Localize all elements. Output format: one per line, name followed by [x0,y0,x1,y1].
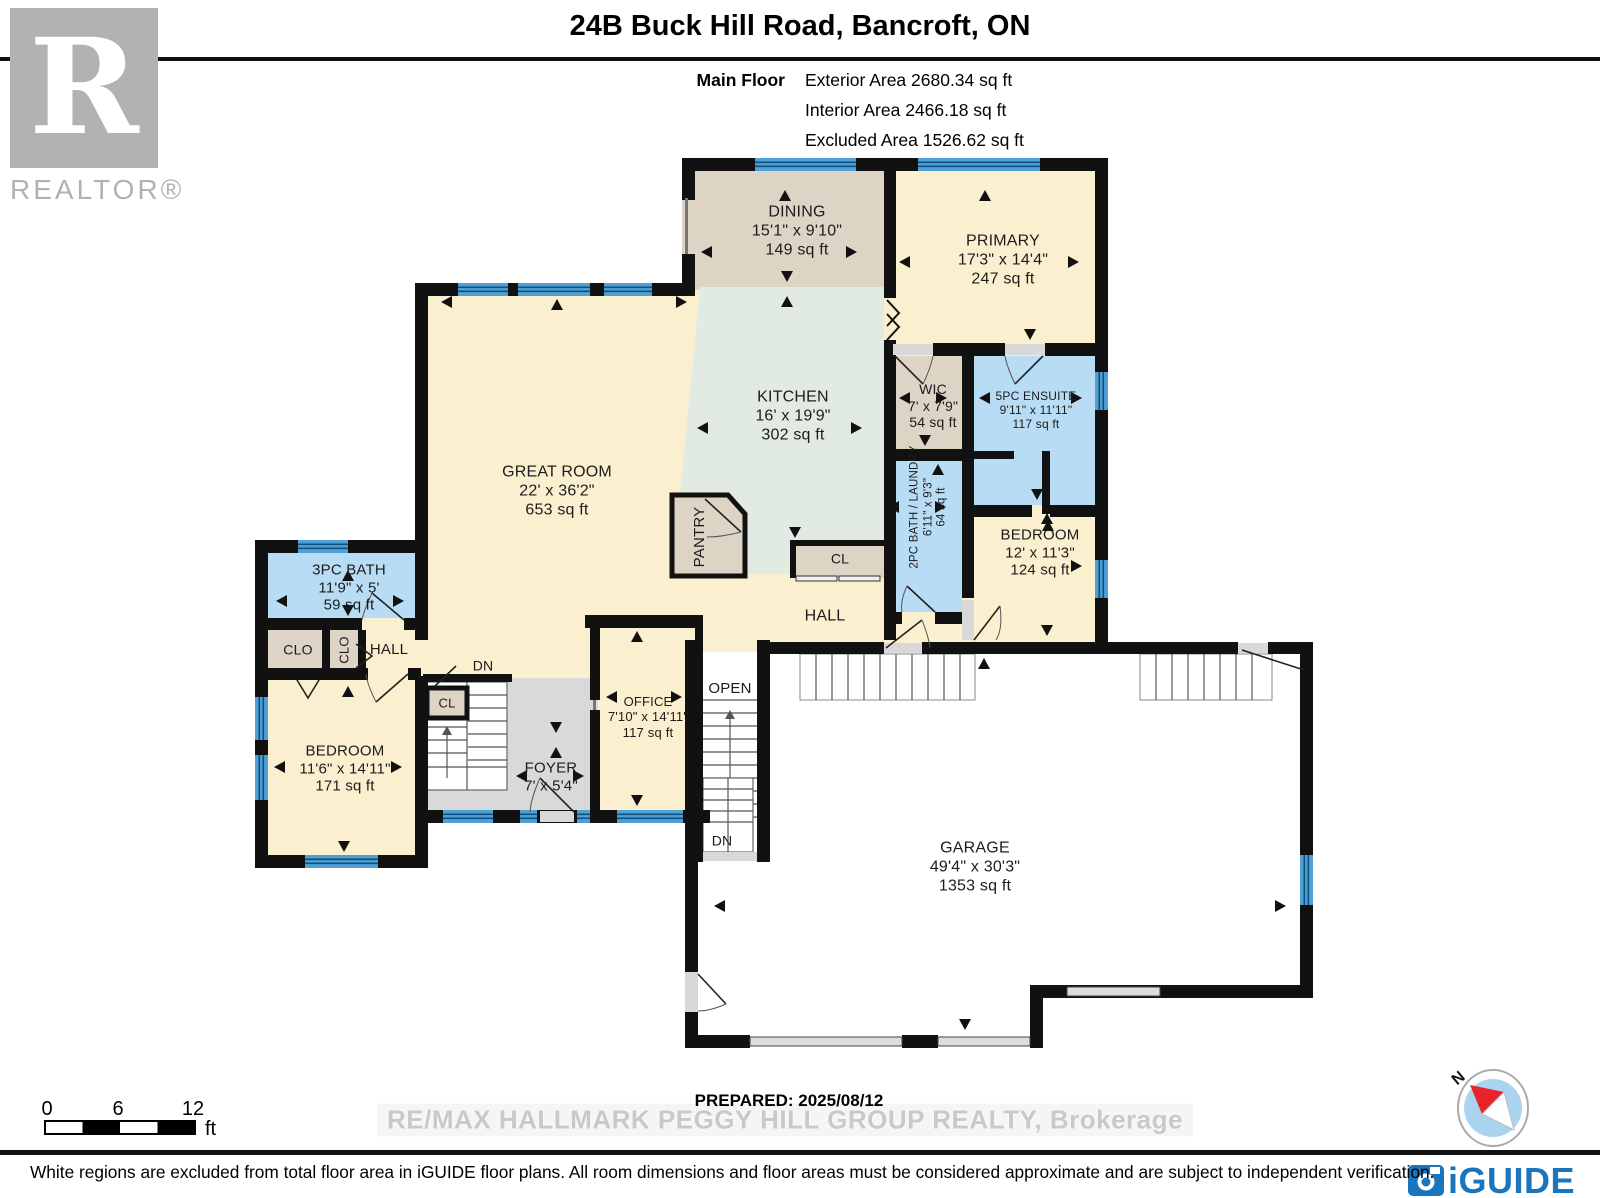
room-dims: 7' x 5'4" [524,777,578,795]
scale-tick-0: 0 [41,1098,52,1121]
interior-area: Interior Area 2466.18 sq ft [805,100,1024,121]
room-name: BEDROOM [299,742,390,760]
room-area: 247 sq ft [958,270,1048,289]
area-stats: Exterior Area 2680.34 sq ft Interior Are… [805,70,1024,160]
room-label-garage: GARAGE 49'4" x 30'3" 1353 sq ft [930,840,1020,897]
room-area: 59 sq ft [312,597,386,615]
room-area: 149 sq ft [752,241,842,260]
room-name: WIC [908,381,958,398]
room-area: 171 sq ft [299,778,390,796]
page-title: 24B Buck Hill Road, Bancroft, ON [0,10,1600,43]
room-dims: 15'1" x 9'10" [752,223,842,242]
exterior-area: Exterior Area 2680.34 sq ft [805,70,1024,91]
room-name: 3PC BATH [312,561,386,579]
room-label-wic: WIC 7' x 7'9" 54 sq ft [908,381,958,431]
room-label-great-room: GREAT ROOM 22' x 36'2" 653 sq ft [502,464,612,521]
room-area: 64 sq ft [936,445,950,568]
scale-bar [45,1121,195,1134]
hall-upper-label: HALL [805,608,846,627]
room-dims: 22' x 36'2" [502,483,612,502]
room-name: GREAT ROOM [502,464,612,483]
room-dims: 49'4" x 30'3" [930,859,1020,878]
header-divider [0,57,1600,61]
footer-divider [0,1150,1600,1155]
room-area: 302 sq ft [755,426,830,445]
prepared-date: PREPARED: 2025/08/12 [695,1091,884,1111]
iguide-logo-text: iGUIDE [1448,1160,1575,1198]
room-label-kitchen: KITCHEN 16' x 19'9" 302 sq ft [755,389,830,446]
room-label-primary: PRIMARY 17'3" x 14'4" 247 sq ft [958,233,1048,290]
realtor-logo-icon: R [10,8,158,168]
room-name: PRIMARY [958,233,1048,252]
room-dims: 11'6" x 14'11" [299,760,390,778]
room-name: 5PC ENSUITE [996,389,1077,403]
room-area: 54 sq ft [908,414,958,431]
room-label-foyer: FOYER 7' x 5'4" [524,759,578,794]
room-dims: 7'10" x 14'11" [608,709,688,724]
room-label-bath-laundry: 2PC BATH / LAUNDRY 6'11" x 9'3" 64 sq ft [909,445,950,568]
room-area: 124 sq ft [1001,562,1080,580]
realtor-logo: R REALTOR® [10,8,184,206]
room-name: 2PC BATH / LAUNDRY [909,445,923,568]
realtor-r-glyph: R [29,22,139,154]
room-name: KITCHEN [755,389,830,408]
pantry-label: PANTRY [691,507,709,568]
scale-tick-6: 6 [112,1098,123,1121]
dn-label-foyer: DN [473,658,494,675]
room-area: 117 sq ft [996,417,1077,431]
room-dims: 17'3" x 14'4" [958,252,1048,271]
floorplan-drawing [0,0,1600,1198]
room-label-bath-3pc: 3PC BATH 11'9" x 5' 59 sq ft [312,561,386,614]
room-dims: 16' x 19'9" [755,408,830,427]
room-name: BEDROOM [1001,526,1080,544]
room-dims: 9'11" x 11'11" [996,403,1077,417]
scale-unit: ft [205,1118,216,1141]
room-area: 1353 sq ft [930,877,1020,896]
closet-label-cl-foyer: CL [438,695,455,710]
disclaimer-text: White regions are excluded from total fl… [30,1162,1434,1183]
floor-label: Main Floor [610,70,785,91]
room-dims: 11'9" x 5' [312,579,386,597]
room-dims: 7' x 7'9" [908,398,958,415]
room-area: 117 sq ft [608,725,688,740]
floorplan-page: 24B Buck Hill Road, Bancroft, ON Main Fl… [0,0,1600,1198]
closet-label-clo-b: CLO [336,636,351,663]
room-name: OFFICE [608,694,688,709]
room-area: 653 sq ft [502,501,612,520]
room-dims: 6'11" x 9'3" [922,445,936,568]
excluded-area: Excluded Area 1526.62 sq ft [805,130,1024,151]
room-label-office: OFFICE 7'10" x 14'11" 117 sq ft [608,694,688,740]
room-dims: 12' x 11'3" [1001,544,1080,562]
room-name: DINING [752,204,842,223]
realtor-logo-text: REALTOR® [10,174,184,206]
room-name: GARAGE [930,840,1020,859]
hall-lower-label: HALL [370,641,408,659]
scale-tick-12: 12 [182,1098,204,1121]
dn-label-garage: DN [712,833,733,850]
room-name: FOYER [524,759,578,777]
closet-label-cl-kitchen: CL [831,551,849,568]
closet-label-clo-a: CLO [283,642,312,659]
room-label-ensuite: 5PC ENSUITE 9'11" x 11'11" 117 sq ft [996,389,1077,431]
open-label: OPEN [708,680,751,698]
room-label-bedroom-left: BEDROOM 11'6" x 14'11" 171 sq ft [299,742,390,795]
room-label-bedroom-right: BEDROOM 12' x 11'3" 124 sq ft [1001,526,1080,579]
room-label-dining: DINING 15'1" x 9'10" 149 sq ft [752,204,842,261]
